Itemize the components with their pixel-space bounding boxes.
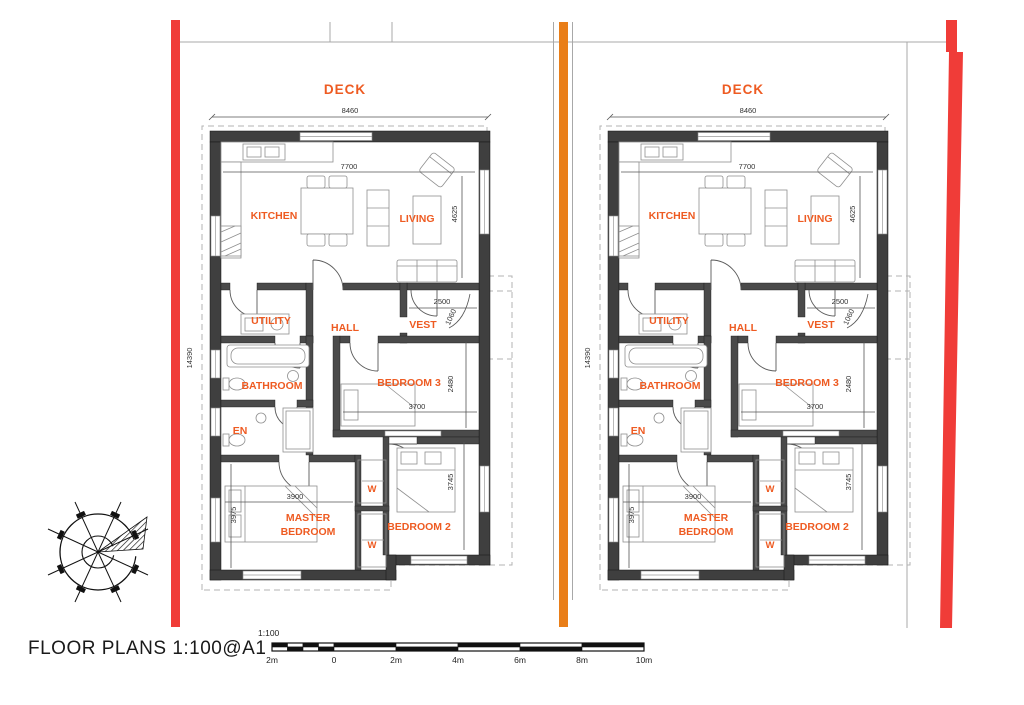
svg-text:3900: 3900 <box>287 492 304 501</box>
armchair <box>817 152 854 188</box>
svg-text:4625: 4625 <box>848 206 857 223</box>
living-label: LIVING <box>797 213 832 225</box>
ensuite-basin <box>654 413 664 423</box>
svg-text:4625: 4625 <box>450 206 459 223</box>
svg-text:3700: 3700 <box>807 402 824 411</box>
dining-table <box>301 176 353 246</box>
bathroom-label: BATHROOM <box>639 380 700 392</box>
shelf-unit <box>367 190 389 246</box>
svg-text:3975: 3975 <box>229 507 238 524</box>
armchair <box>419 152 456 188</box>
scale-bar: 1:100 2m 0 2m <box>250 622 670 672</box>
utility-label: UTILITY <box>649 315 689 327</box>
bathtub <box>227 345 309 367</box>
svg-text:2500: 2500 <box>434 297 451 306</box>
utility-label: UTILITY <box>251 315 291 327</box>
kitchen-label: KITCHEN <box>649 210 696 222</box>
wardrobe-label: W <box>368 484 377 495</box>
master-label-line1: MASTER <box>286 512 331 524</box>
vest-label: VEST <box>409 319 437 331</box>
wardrobe-label: W <box>766 540 775 551</box>
shelf-unit <box>765 190 787 246</box>
svg-text:2480: 2480 <box>446 376 455 393</box>
ensuite-label: EN <box>631 425 646 437</box>
svg-text:2500: 2500 <box>832 297 849 306</box>
bedroom3-label: BEDROOM 3 <box>377 377 441 389</box>
floor-plan-sheet: DECK 8460 <box>0 0 1024 705</box>
deck-label: DECK <box>324 82 366 97</box>
svg-text:7700: 7700 <box>341 162 358 171</box>
vest-label: VEST <box>807 319 835 331</box>
scale-bar-segments <box>272 643 644 651</box>
svg-text:14390: 14390 <box>583 348 592 369</box>
hall-label: HALL <box>729 322 758 334</box>
master-label-line2: BEDROOM <box>679 526 734 538</box>
kitchen-label: KITCHEN <box>251 210 298 222</box>
left-boundary-line <box>171 20 180 627</box>
svg-text:8460: 8460 <box>342 106 359 115</box>
svg-text:14390: 14390 <box>185 348 194 369</box>
svg-text:3900: 3900 <box>685 492 702 501</box>
ensuite-shower <box>681 408 711 452</box>
ensuite-basin <box>256 413 266 423</box>
dimension-overall-width: 8460 <box>209 106 491 120</box>
dimension-overall-width: 8460 <box>607 106 889 120</box>
svg-text:2m: 2m <box>266 655 278 665</box>
svg-text:8460: 8460 <box>740 106 757 115</box>
ensuite-shower <box>283 408 313 452</box>
bathroom-label: BATHROOM <box>241 380 302 392</box>
svg-text:8m: 8m <box>576 655 588 665</box>
svg-text:4m: 4m <box>452 655 464 665</box>
north-arrow-compass-icon <box>48 502 148 602</box>
floor-plan-left: DECK 8460 <box>185 78 515 608</box>
svg-text:6m: 6m <box>514 655 526 665</box>
bedroom3-bed <box>341 384 415 426</box>
svg-text:2m: 2m <box>390 655 402 665</box>
hall-label: HALL <box>331 322 360 334</box>
bedroom3-bed <box>739 384 813 426</box>
deck-label: DECK <box>722 82 764 97</box>
bathtub <box>625 345 707 367</box>
scale-bar-labels: 2m 0 2m 4m 6m 8m 10m <box>266 655 652 665</box>
sofa <box>795 260 855 282</box>
sofa <box>397 260 457 282</box>
master-label-line1: MASTER <box>684 512 729 524</box>
svg-text:3745: 3745 <box>844 474 853 491</box>
ensuite-label: EN <box>233 425 248 437</box>
svg-text:10m: 10m <box>636 655 653 665</box>
living-label: LIVING <box>399 213 434 225</box>
svg-text:7700: 7700 <box>739 162 756 171</box>
svg-text:2480: 2480 <box>844 376 853 393</box>
drawing-title: FLOOR PLANS 1:100@A1 <box>28 638 266 660</box>
party-wall-line <box>559 22 568 627</box>
bedroom2-label: BEDROOM 2 <box>785 521 849 533</box>
svg-text:0: 0 <box>332 655 337 665</box>
wardrobe-label: W <box>368 540 377 551</box>
svg-text:3700: 3700 <box>409 402 426 411</box>
bedroom3-label: BEDROOM 3 <box>775 377 839 389</box>
dining-table <box>699 176 751 246</box>
svg-text:3975: 3975 <box>627 507 636 524</box>
wardrobe-label: W <box>766 484 775 495</box>
floor-plan-right: DECK 8460 <box>583 78 913 608</box>
svg-text:3745: 3745 <box>446 474 455 491</box>
master-label-line2: BEDROOM <box>281 526 336 538</box>
right-boundary-line <box>940 20 963 628</box>
bedroom2-label: BEDROOM 2 <box>387 521 451 533</box>
scale-ratio-label: 1:100 <box>258 628 280 638</box>
